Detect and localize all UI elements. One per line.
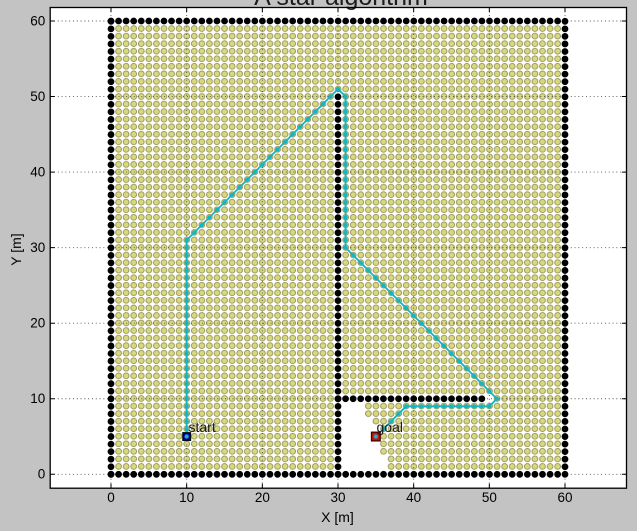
svg-text:60: 60 xyxy=(30,13,45,28)
svg-text:20: 20 xyxy=(255,490,270,505)
svg-text:50: 50 xyxy=(482,490,497,505)
svg-text:start: start xyxy=(189,419,216,435)
svg-text:0: 0 xyxy=(38,467,46,482)
svg-text:10: 10 xyxy=(30,391,45,406)
svg-text:40: 40 xyxy=(30,164,45,179)
svg-text:10: 10 xyxy=(179,490,194,505)
svg-text:30: 30 xyxy=(330,490,345,505)
svg-text:50: 50 xyxy=(30,89,45,104)
svg-text:A star algorithm: A star algorithm xyxy=(254,0,428,11)
svg-text:30: 30 xyxy=(30,240,45,255)
svg-text:Y [m]: Y [m] xyxy=(8,233,24,265)
svg-text:X [m]: X [m] xyxy=(321,509,354,525)
svg-text:20: 20 xyxy=(30,316,45,331)
svg-text:40: 40 xyxy=(406,490,421,505)
svg-text:60: 60 xyxy=(557,490,572,505)
svg-text:goal: goal xyxy=(377,419,403,435)
svg-text:0: 0 xyxy=(107,490,115,505)
